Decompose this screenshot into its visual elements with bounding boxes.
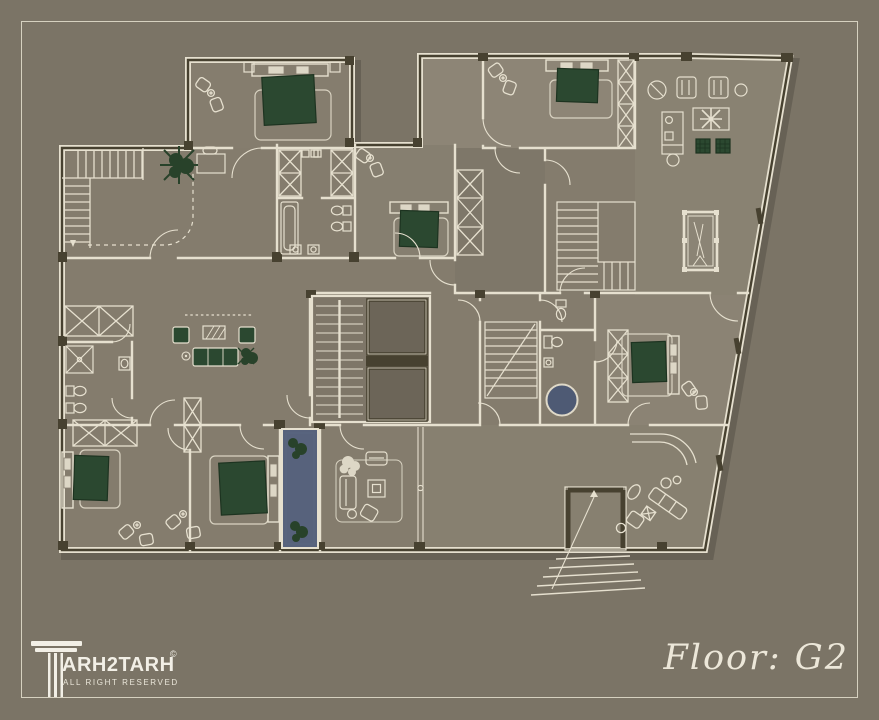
column-icon-bar [35, 648, 77, 652]
brand-name: ARH2TARH [62, 654, 175, 677]
floor-plan [0, 0, 879, 720]
column-icon-shaft [48, 653, 63, 697]
green-ottoman [696, 139, 710, 153]
column-icon [31, 641, 82, 646]
armchair [239, 327, 255, 343]
stair-core [312, 296, 430, 422]
plant [160, 146, 198, 184]
armchair [173, 327, 189, 343]
round-jacuzzi-tub [547, 385, 578, 416]
sofa [193, 348, 238, 366]
brand-tagline: ALL RIGHT RESERVED [63, 678, 179, 687]
billiard-table [682, 210, 719, 272]
floor-label: Floor: G2 [664, 638, 850, 678]
copyright-symbol: © [170, 649, 177, 659]
lap-pool [282, 429, 318, 548]
presentation-board: ARH2TARH © ALL RIGHT RESERVED Floor: G2 [0, 0, 879, 720]
logo: ARH2TARH © ALL RIGHT RESERVED [31, 639, 201, 699]
green-ottoman [716, 139, 730, 153]
elevator-shafts [366, 300, 428, 420]
